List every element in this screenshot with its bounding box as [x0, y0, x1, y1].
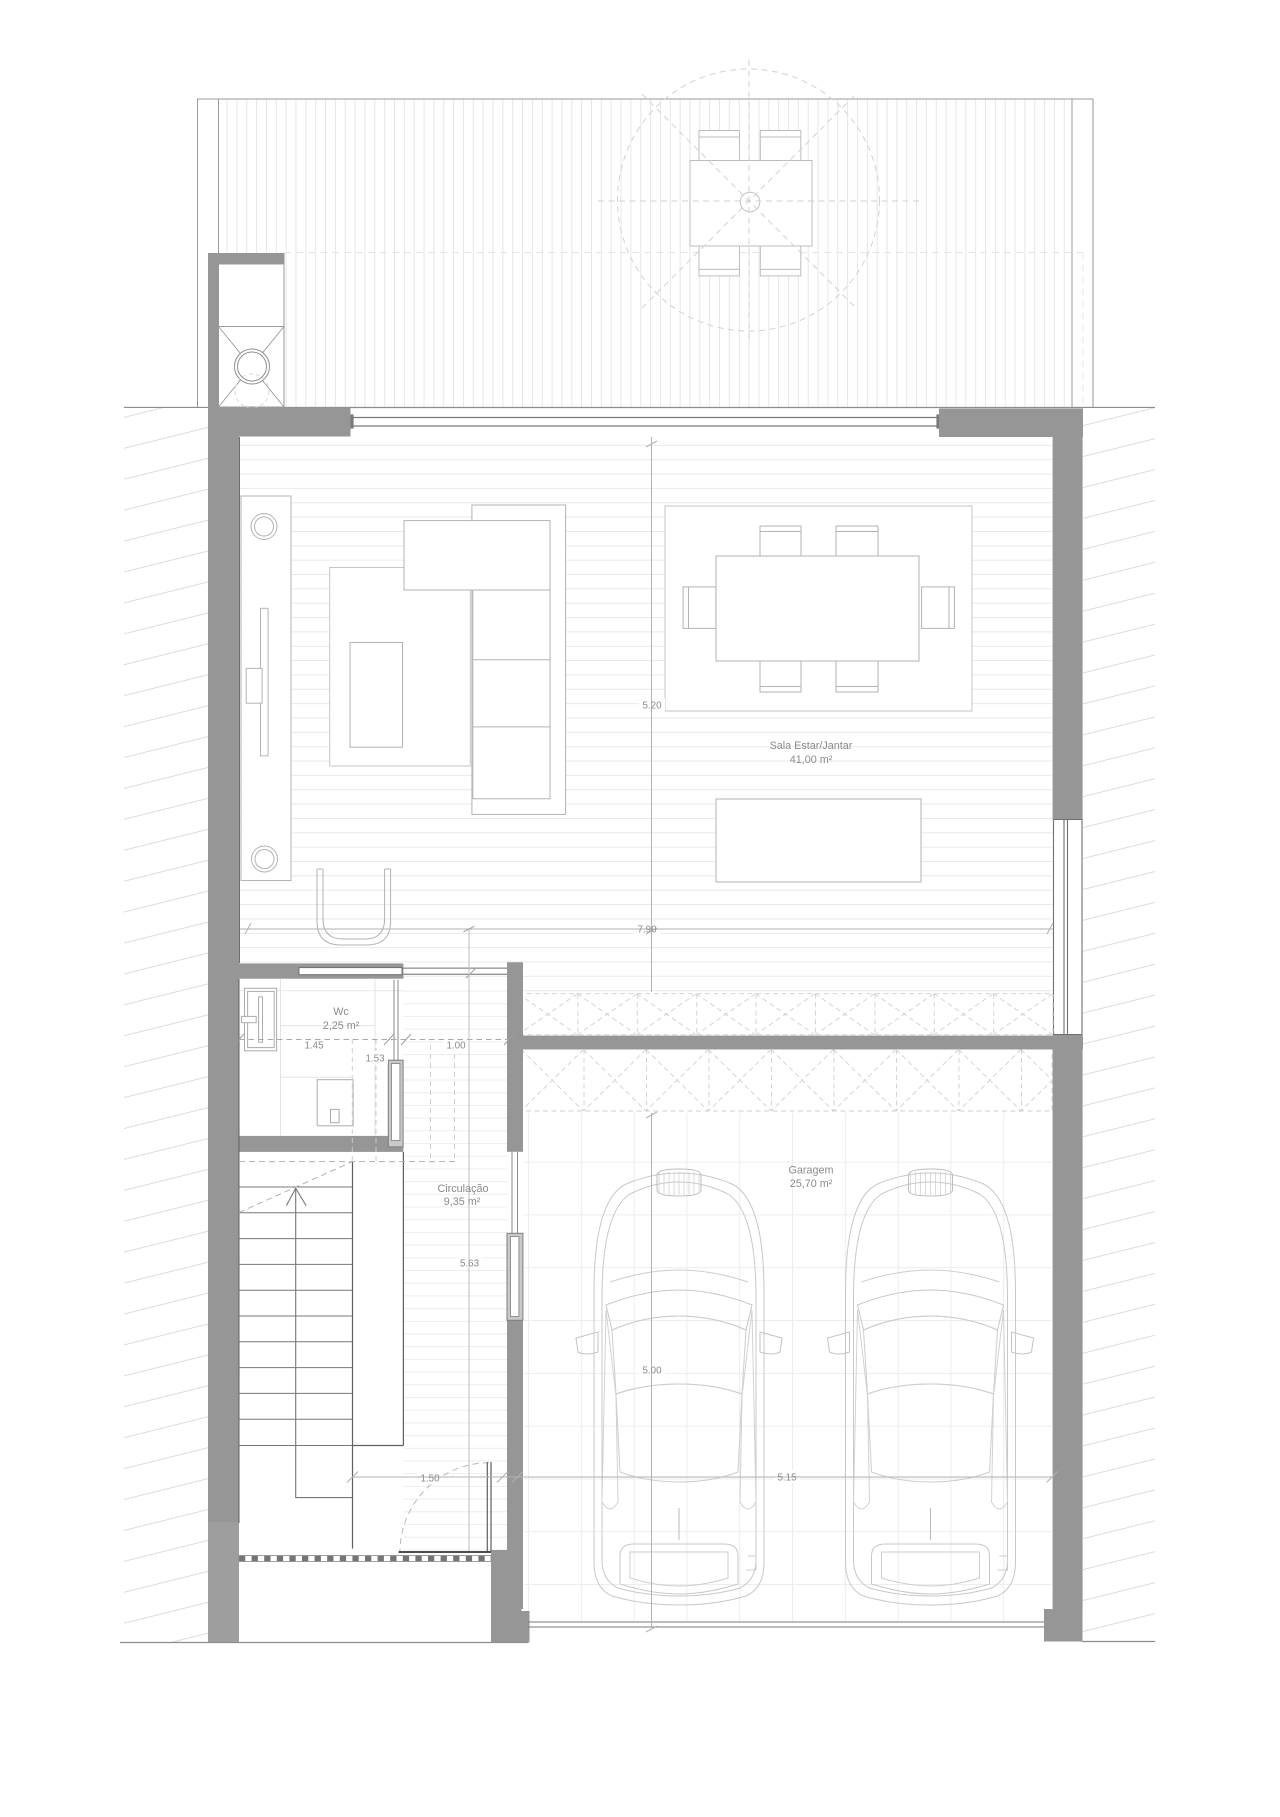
- svg-text:5.20: 5.20: [642, 701, 662, 712]
- svg-text:2,25 m²: 2,25 m²: [323, 1020, 360, 1032]
- svg-text:9,35 m²: 9,35 m²: [444, 1196, 481, 1208]
- svg-text:1.53: 1.53: [365, 1054, 385, 1065]
- svg-text:5.15: 5.15: [777, 1473, 797, 1484]
- svg-text:Wc: Wc: [333, 1006, 349, 1018]
- svg-text:1.45: 1.45: [304, 1041, 324, 1052]
- svg-text:25,70 m²: 25,70 m²: [790, 1178, 833, 1190]
- svg-text:Sala Estar/Jantar: Sala Estar/Jantar: [770, 740, 853, 752]
- svg-text:Circulação: Circulação: [437, 1183, 488, 1195]
- svg-text:5.00: 5.00: [642, 1366, 662, 1377]
- svg-text:1.00: 1.00: [446, 1041, 466, 1052]
- svg-text:5.63: 5.63: [460, 1259, 480, 1270]
- svg-text:1.50: 1.50: [420, 1474, 440, 1485]
- svg-text:7.90: 7.90: [637, 925, 657, 936]
- svg-text:Garagem: Garagem: [788, 1165, 833, 1177]
- svg-text:41,00 m²: 41,00 m²: [790, 754, 833, 766]
